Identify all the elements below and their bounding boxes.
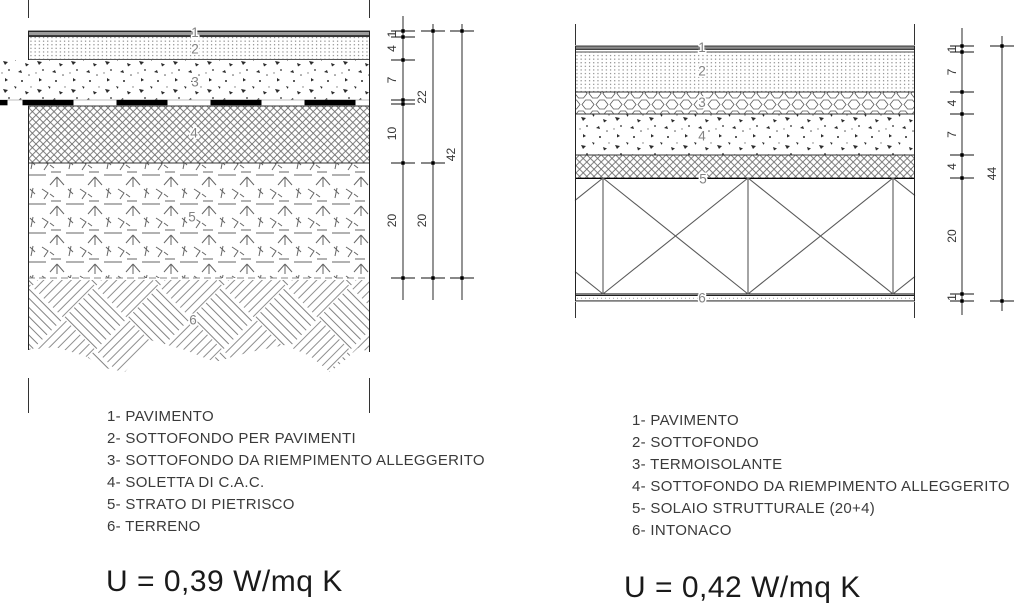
layer-number: 1 [698,40,706,55]
layer-number: 6 [698,291,706,306]
dimension-label: 7 [945,131,959,138]
right-layer-riempimento [576,114,915,155]
dimension-ticks [950,46,1014,301]
dimension-label: 20 [415,214,429,228]
left-layer-riempimento [0,60,370,100]
dimension-label: 42 [444,148,458,162]
left-formwork-dashes [0,100,370,105]
dimension-label: 20 [385,214,399,228]
right-layer-intonaco [575,296,915,301]
legend-item: 5- STRATO DI PIETRISCO [107,494,485,516]
legend-item: 6- TERRENO [107,516,485,538]
dimension-label: 1 [945,294,959,301]
layer-number: 2 [191,42,199,57]
legend-item: 4- SOLETTA DI C.A.C. [107,472,485,494]
left-dimension-chains: 1 4 7 10 20 22 20 42 [385,16,474,300]
right-u-value: U = 0,42 W/mq K [624,571,861,605]
dimension-label: 4 [945,163,959,170]
layer-number: 5 [188,210,196,225]
dimension-label: 4 [945,99,959,106]
right-section-drawing: 1 2 3 4 5 6 1 7 4 7 4 20 1 44 [575,24,1014,318]
legend-item: 2- SOTTOFONDO [632,432,1010,454]
left-layer-terreno [28,280,370,372]
layer-number: 2 [698,64,706,79]
layer-number: 3 [191,75,199,90]
layer-number: 4 [698,129,706,144]
right-dimension-chains: 1 7 4 7 4 20 1 44 [945,28,1014,315]
left-layer-sottofondo [29,37,370,60]
right-layer-soletta-collaborante [576,155,915,178]
left-layer-pietrisco [28,163,370,278]
right-legend: 1- PAVIMENTO 2- SOTTOFONDO 3- TERMOISOLA… [632,410,1010,542]
right-layer-pavimento [575,46,915,49]
dimension-label: 22 [415,90,429,104]
right-structural-truss [575,178,915,294]
left-section-drawing: 1 2 3 4 5 6 1 4 7 10 20 22 20 42 [0,0,474,413]
right-layer-sottofondo [576,52,915,92]
legend-item: 5- SOLAIO STRUTTURALE (20+4) [632,498,1010,520]
dimension-label: 10 [385,127,399,141]
legend-item: 1- PAVIMENTO [632,410,1010,432]
left-u-value: U = 0,39 W/mq K [106,565,343,599]
layer-number: 5 [699,172,707,187]
left-layer-pavimento [28,31,370,36]
dimension-label: 1 [945,45,959,52]
layer-number: 3 [698,95,706,110]
dimension-label: 7 [945,68,959,75]
legend-item: 3- TERMOISOLANTE [632,454,1010,476]
dimension-label: 4 [385,45,399,52]
legend-item: 1- PAVIMENTO [107,406,485,428]
dimension-label: 44 [985,167,999,181]
dimension-label: 7 [385,76,399,83]
left-layer-soletta [29,106,370,163]
dimension-label: 1 [385,30,399,37]
right-layer-termoisolante [576,92,915,114]
legend-item: 4- SOTTOFONDO DA RIEMPIMENTO ALLEGGERITO [632,476,1010,498]
legend-item: 3- SOTTOFONDO DA RIEMPIMENTO ALLEGGERITO [107,450,485,472]
left-legend: 1- PAVIMENTO 2- SOTTOFONDO PER PAVIMENTI… [107,406,485,538]
layer-number: 4 [190,126,198,141]
dimension-label: 20 [945,229,959,243]
legend-item: 6- INTONACO [632,520,1010,542]
drawing-page: 1 2 3 4 5 6 1 4 7 10 20 22 20 42 [0,0,1024,616]
legend-item: 2- SOTTOFONDO PER PAVIMENTI [107,428,485,450]
layer-number: 6 [189,313,197,328]
layer-number: 1 [191,25,199,40]
